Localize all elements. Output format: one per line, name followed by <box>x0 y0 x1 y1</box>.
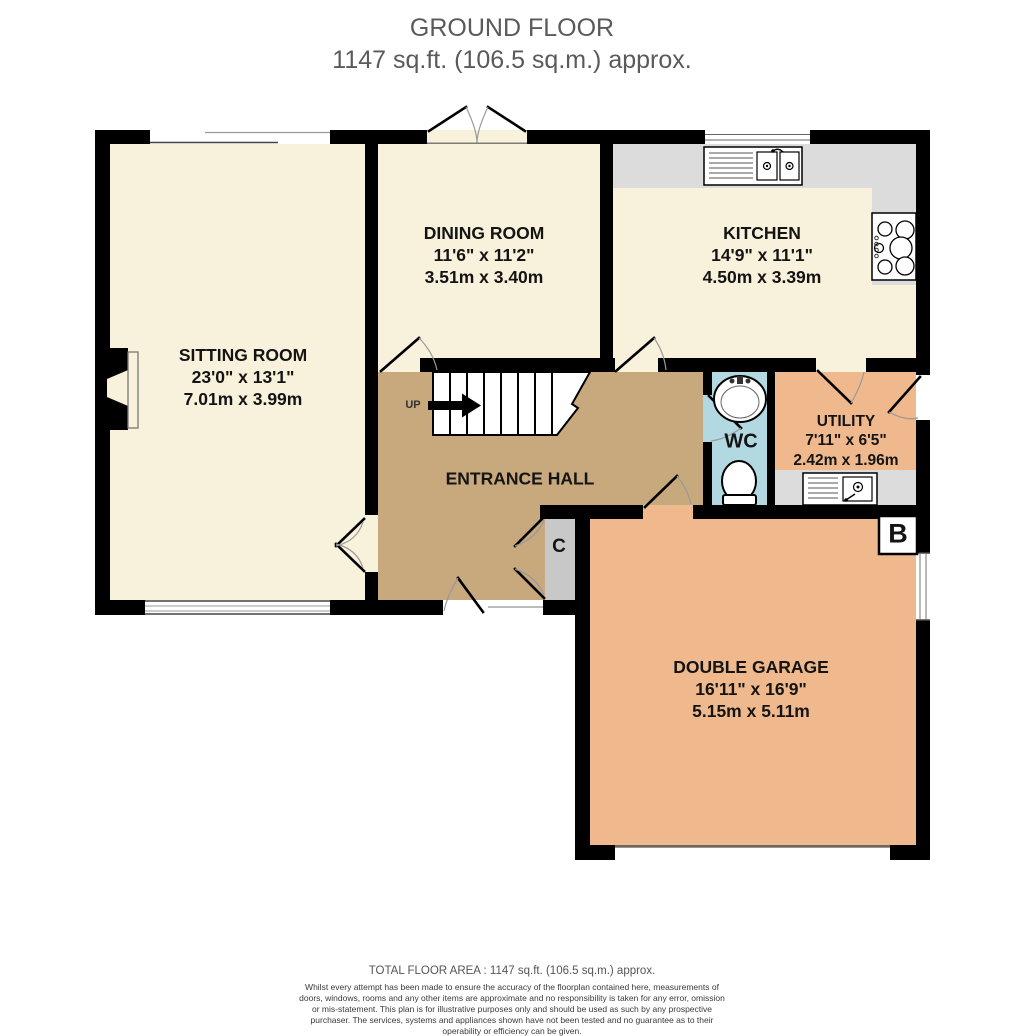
footer: TOTAL FLOOR AREA : 1147 sq.ft. (106.5 sq… <box>0 965 1024 1036</box>
kitchen-label: KITCHEN 14'9" x 11'1" 4.50m x 3.39m <box>703 223 822 289</box>
boiler-label: B <box>888 519 908 550</box>
sitting-room-label: SITTING ROOM 23'0" x 13'1" 7.01m x 3.99m <box>179 345 307 411</box>
entrance-hall-label: ENTRANCE HALL <box>446 469 595 490</box>
cupboard-label: C <box>552 536 566 558</box>
disclaimer-text: Whilst every attempt has been made to en… <box>296 982 728 1036</box>
floorplan-page: GROUND FLOOR 1147 sq.ft. (106.5 sq.m.) a… <box>0 0 1024 1036</box>
up-label: UP <box>405 399 420 411</box>
dining-room-label: DINING ROOM 11'6" x 11'2" 3.51m x 3.40m <box>424 223 545 289</box>
wc-label: WC <box>724 431 757 454</box>
total-floor-area: TOTAL FLOOR AREA : 1147 sq.ft. (106.5 sq… <box>0 965 1024 977</box>
utility-label: UTILITY 7'11" x 6'5" 2.42m x 1.96m <box>793 412 898 470</box>
room-labels: SITTING ROOM 23'0" x 13'1" 7.01m x 3.99m… <box>0 0 1024 1036</box>
garage-label: DOUBLE GARAGE 16'11" x 16'9" 5.15m x 5.1… <box>673 657 829 723</box>
